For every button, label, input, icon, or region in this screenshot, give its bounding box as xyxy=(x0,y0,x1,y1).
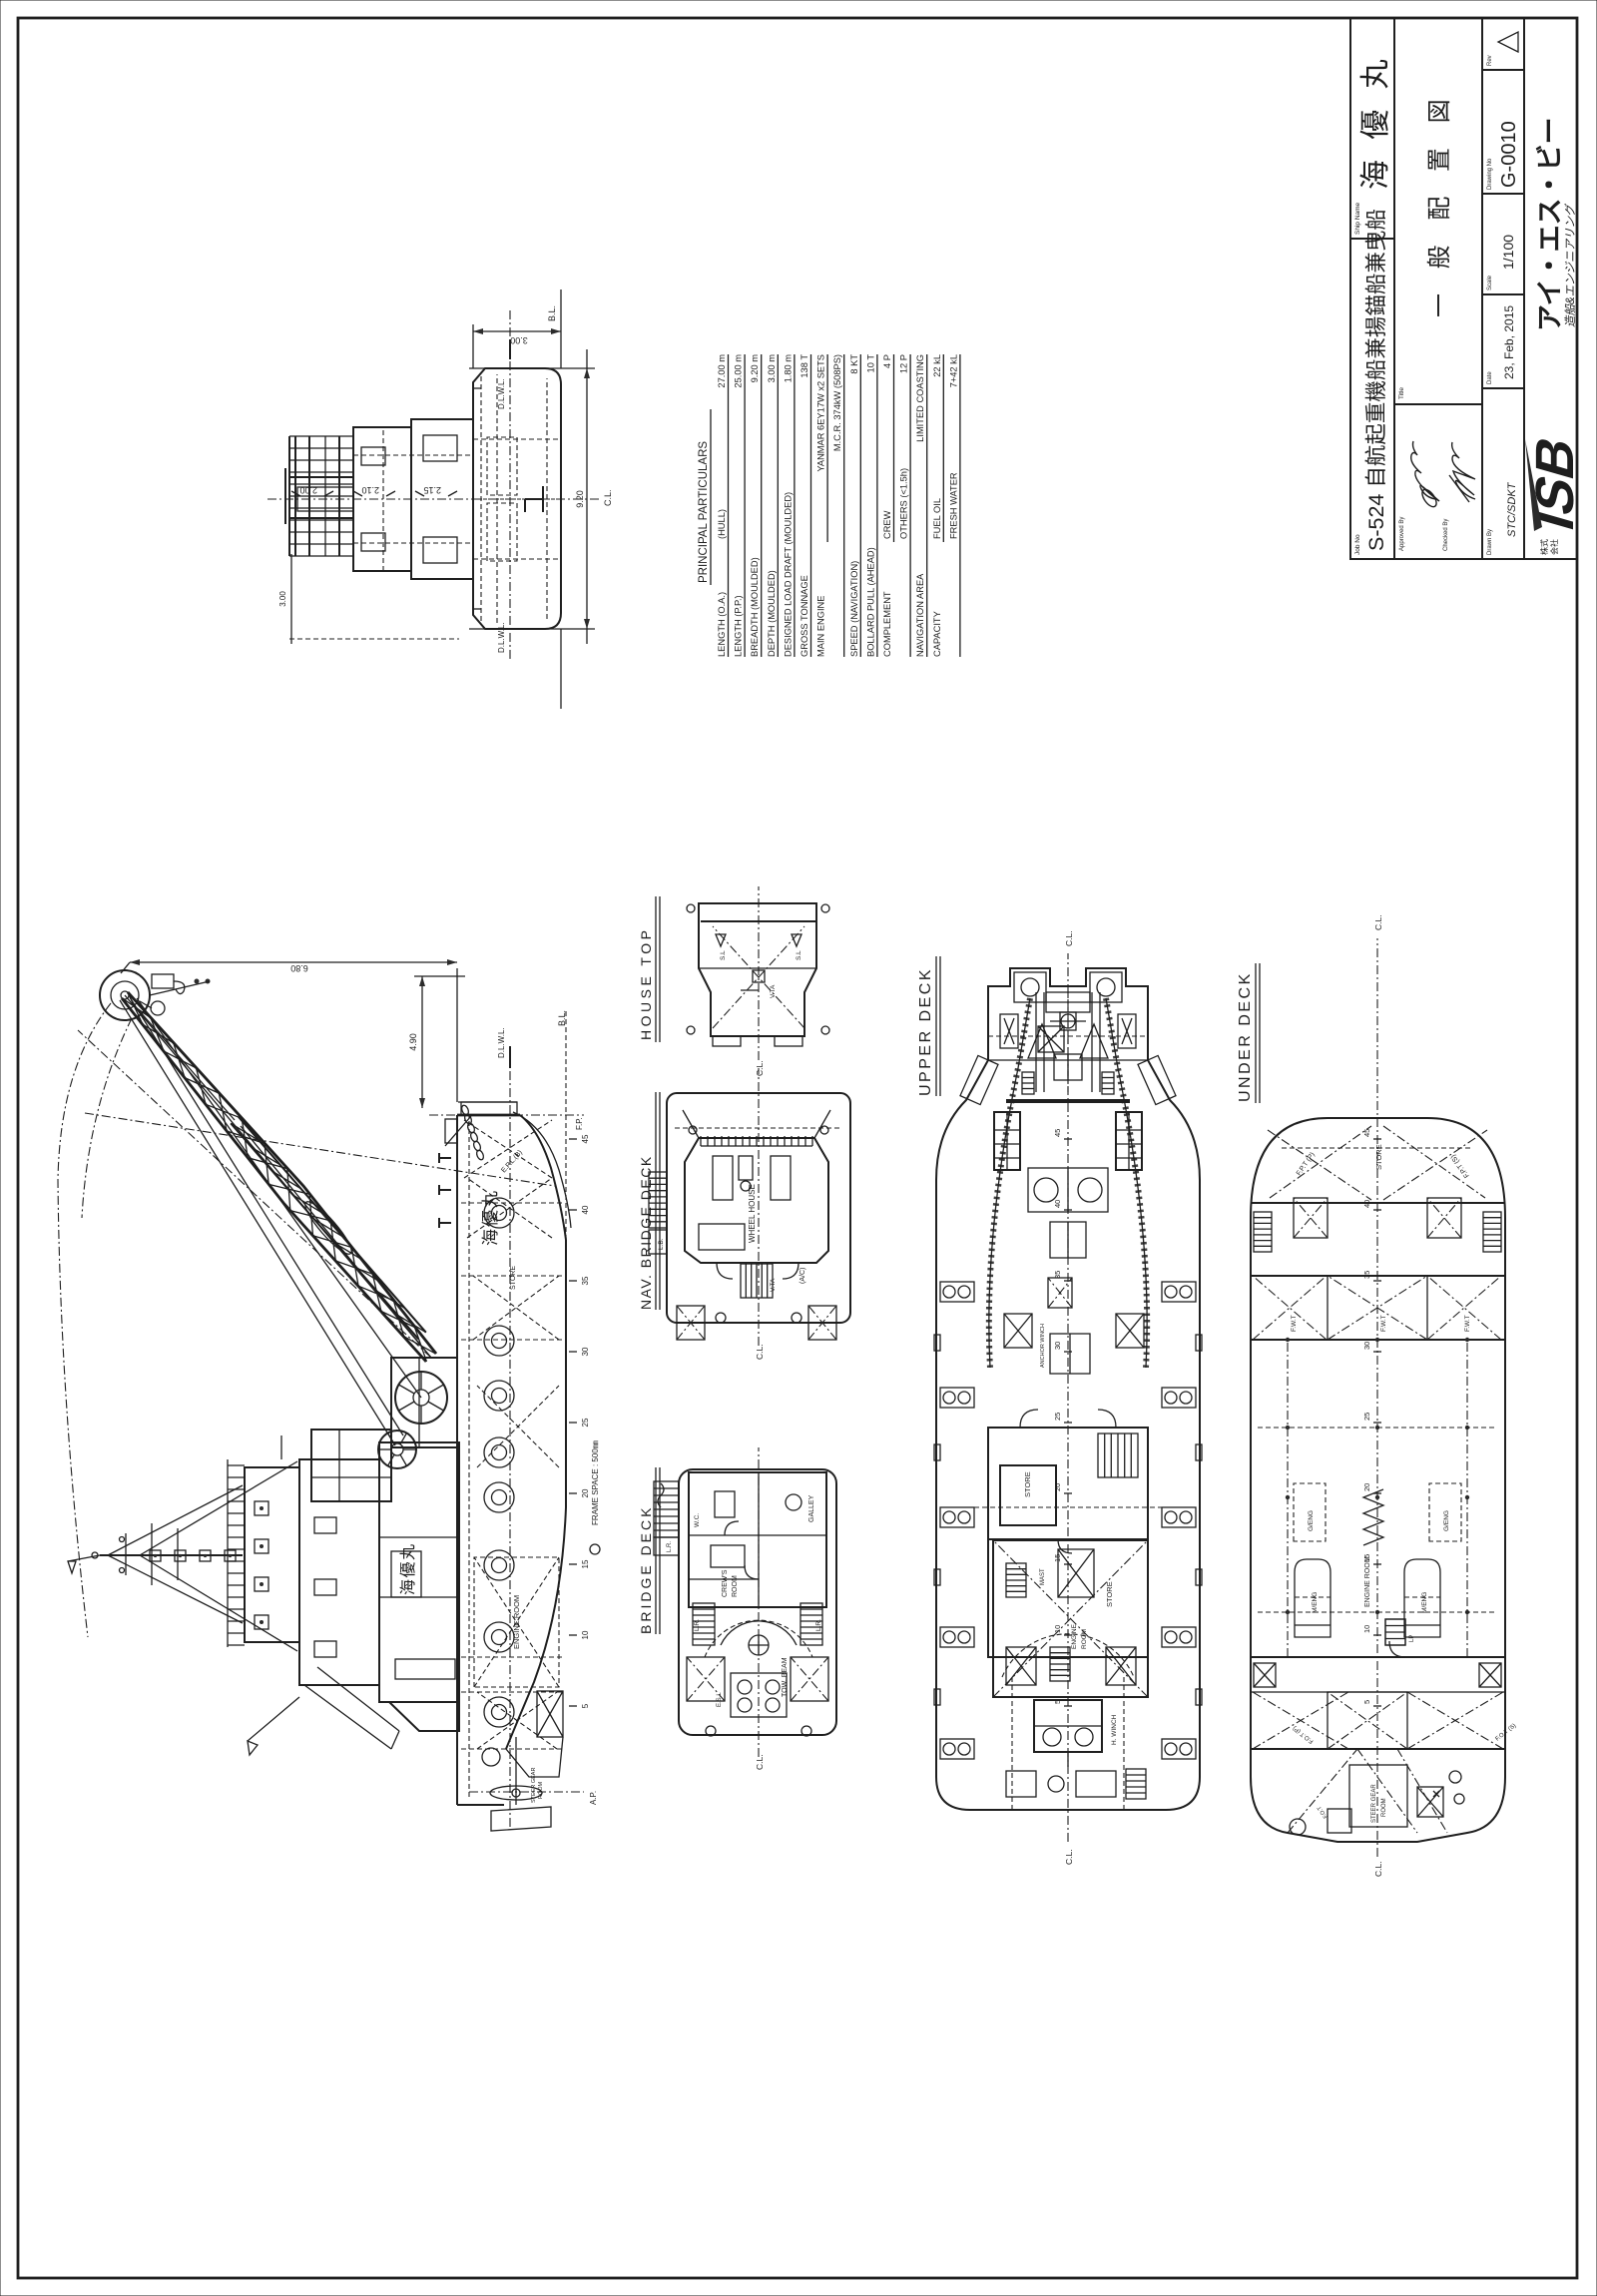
svg-text:L.R.: L.R. xyxy=(694,1619,701,1631)
svg-text:2.15: 2.15 xyxy=(423,485,441,495)
svg-text:ROOM: ROOM xyxy=(1381,1798,1387,1817)
svg-text:10: 10 xyxy=(581,1630,590,1639)
svg-text:20: 20 xyxy=(581,1488,590,1497)
svg-text:海優丸: 海優丸 xyxy=(481,1189,500,1246)
svg-text:30: 30 xyxy=(581,1347,590,1356)
svg-text:GROSS TONNAGE: GROSS TONNAGE xyxy=(799,575,809,657)
svg-text:H. WINCH: H. WINCH xyxy=(1111,1714,1118,1745)
svg-text:138 T: 138 T xyxy=(799,354,809,378)
svg-text:Ship Name: Ship Name xyxy=(1354,202,1361,235)
svg-text:SPEED (NAVIGATION): SPEED (NAVIGATION) xyxy=(849,561,859,657)
svg-text:20: 20 xyxy=(1362,1483,1371,1491)
svg-text:W.C.: W.C. xyxy=(694,1513,701,1527)
svg-text:ENGINE ROOM: ENGINE ROOM xyxy=(512,1595,521,1649)
svg-text:S.L: S.L xyxy=(720,950,727,960)
svg-text:FRAME SPACE : 500㎜: FRAME SPACE : 500㎜ xyxy=(591,1440,600,1525)
svg-text:B.L.: B.L. xyxy=(547,305,557,321)
svg-text:30: 30 xyxy=(1362,1342,1371,1350)
svg-text:A.P.: A.P. xyxy=(589,1791,598,1805)
svg-text:LENGTH (P.P.): LENGTH (P.P.) xyxy=(734,595,744,657)
svg-text:海 優 丸: 海 優 丸 xyxy=(1359,53,1392,190)
svg-text:1.80 m: 1.80 m xyxy=(783,354,793,383)
svg-text:E.S.L: E.S.L xyxy=(717,1692,723,1707)
svg-text:ROOM: ROOM xyxy=(538,1781,544,1799)
svg-text:Rev: Rev xyxy=(1487,55,1493,66)
svg-text:G/ENG: G/ENG xyxy=(1308,1510,1315,1531)
svg-text:ROOM: ROOM xyxy=(1081,1629,1088,1649)
svg-text:10: 10 xyxy=(1362,1625,1371,1633)
svg-text:ANCHOR WINCH: ANCHOR WINCH xyxy=(1040,1324,1046,1368)
svg-text:45: 45 xyxy=(581,1134,590,1143)
svg-text:Scale: Scale xyxy=(1487,275,1493,290)
svg-text:F.P.: F.P. xyxy=(575,1117,584,1130)
svg-text:BRIDGE DECK: BRIDGE DECK xyxy=(638,1505,654,1634)
svg-text:一 般 配 置 図: 一 般 配 置 図 xyxy=(1426,90,1453,317)
svg-text:会社: 会社 xyxy=(1549,539,1559,555)
svg-text:COMPLEMENT: COMPLEMENT xyxy=(882,591,892,657)
svg-text:海優丸: 海優丸 xyxy=(399,1542,417,1595)
svg-text:M.C.R. 374kW (508PS): M.C.R. 374kW (508PS) xyxy=(832,354,842,451)
svg-text:22 kL: 22 kL xyxy=(932,354,942,377)
svg-text:UNDER DECK: UNDER DECK xyxy=(1237,971,1254,1102)
svg-text:WHEEL HOUSE: WHEEL HOUSE xyxy=(748,1184,757,1243)
svg-text:Checked By: Checked By xyxy=(1443,519,1449,551)
svg-text:F.P.T (P): F.P.T (P) xyxy=(1296,1151,1317,1177)
svg-text:L.R.: L.R. xyxy=(667,1541,673,1552)
svg-text:C.L.: C.L. xyxy=(1373,914,1383,930)
svg-text:FUEL OIL: FUEL OIL xyxy=(932,498,942,539)
svg-text:HOUSE TOP: HOUSE TOP xyxy=(638,927,654,1040)
svg-text:L.R.: L.R. xyxy=(815,1619,822,1631)
svg-text:L.B.: L.B. xyxy=(658,1238,665,1250)
svg-text:STEER GEAR: STEER GEAR xyxy=(1371,1784,1377,1823)
svg-text:OTHERS (<1.5h): OTHERS (<1.5h) xyxy=(899,468,909,539)
svg-text:GALLEY: GALLEY xyxy=(808,1494,815,1522)
svg-text:C.L.: C.L. xyxy=(755,1754,765,1770)
svg-text:C.L.: C.L. xyxy=(603,489,613,506)
svg-text:30: 30 xyxy=(1053,1342,1062,1350)
svg-text:ENGINE ROOM: ENGINE ROOM xyxy=(1364,1556,1371,1607)
svg-text:1/100: 1/100 xyxy=(1500,235,1516,270)
svg-text:Drawing No: Drawing No xyxy=(1487,158,1493,190)
svg-text:27.00 m: 27.00 m xyxy=(717,354,727,388)
svg-text:35: 35 xyxy=(1362,1271,1371,1279)
svg-text:45: 45 xyxy=(1362,1129,1371,1137)
svg-text:25: 25 xyxy=(581,1418,590,1427)
svg-text:7+42 kL: 7+42 kL xyxy=(948,354,958,387)
svg-text:4.90: 4.90 xyxy=(408,1033,418,1051)
svg-text:UPPER DECK: UPPER DECK xyxy=(917,967,934,1096)
svg-text:45: 45 xyxy=(1053,1129,1062,1137)
svg-text:3.00 m: 3.00 m xyxy=(767,354,777,383)
svg-text:STORE: STORE xyxy=(1374,1144,1383,1170)
svg-text:12 P: 12 P xyxy=(899,354,909,373)
svg-text:35: 35 xyxy=(581,1276,590,1285)
svg-text:S-524 自航起重機船兼揚錨船兼曳船: S-524 自航起重機船兼揚錨船兼曳船 xyxy=(1364,209,1388,551)
svg-text:(HULL): (HULL) xyxy=(717,509,727,539)
svg-text:6.80: 6.80 xyxy=(290,963,308,973)
svg-text:C.L.: C.L. xyxy=(755,1060,765,1076)
svg-text:LP: LP xyxy=(1409,1635,1415,1642)
svg-text:DEPTH (MOULDED): DEPTH (MOULDED) xyxy=(767,570,777,657)
svg-text:8 KT: 8 KT xyxy=(849,354,859,374)
svg-text:V.TA: V.TA xyxy=(770,984,777,998)
svg-text:MAST: MAST xyxy=(1040,1568,1046,1585)
svg-text:Job No: Job No xyxy=(1354,534,1361,555)
svg-text:V.TA: V.TA xyxy=(770,1278,777,1292)
svg-text:STORE: STORE xyxy=(1023,1471,1032,1497)
svg-text:23, Feb, 2015: 23, Feb, 2015 xyxy=(1502,305,1516,379)
svg-text:C.L.: C.L. xyxy=(1064,930,1074,946)
svg-text:D.L.W.L.: D.L.W.L. xyxy=(497,378,506,409)
svg-text:20: 20 xyxy=(1053,1483,1062,1491)
svg-text:9.20: 9.20 xyxy=(575,490,585,508)
svg-text:STORE: STORE xyxy=(1105,1581,1114,1607)
svg-text:M/ENG: M/ENG xyxy=(1312,1592,1319,1613)
svg-text:10 T: 10 T xyxy=(865,354,875,373)
svg-text:造船&エンジニアリング: 造船&エンジニアリング xyxy=(1564,203,1577,327)
svg-text:25: 25 xyxy=(1053,1413,1062,1421)
svg-text:40: 40 xyxy=(1053,1200,1062,1208)
svg-text:G/ENG: G/ENG xyxy=(1443,1510,1450,1531)
svg-text:S.L: S.L xyxy=(796,950,802,960)
svg-text:LIMITED COASTING: LIMITED COASTING xyxy=(915,354,925,442)
svg-text:F.W.T: F.W.T xyxy=(1291,1315,1298,1332)
svg-text:BOLLARD PULL (AHEAD): BOLLARD PULL (AHEAD) xyxy=(865,547,875,657)
svg-text:3.00: 3.00 xyxy=(510,335,528,345)
svg-text:STC/SDKT: STC/SDKT xyxy=(1506,481,1518,537)
svg-text:C.L.: C.L. xyxy=(1064,1849,1074,1865)
svg-text:MAIN ENGINE: MAIN ENGINE xyxy=(816,596,826,657)
svg-text:F.W.T: F.W.T xyxy=(1380,1315,1387,1332)
svg-text:CREW: CREW xyxy=(882,510,892,539)
svg-text:アイ・エス・ビー: アイ・エス・ビー xyxy=(1535,117,1565,331)
svg-text:F.W.T: F.W.T xyxy=(1464,1315,1471,1332)
svg-text:CREW'S: CREW'S xyxy=(722,1569,729,1597)
svg-text:C.L.: C.L. xyxy=(1373,1861,1383,1877)
svg-text:2.10: 2.10 xyxy=(361,485,379,495)
svg-text:2.00: 2.00 xyxy=(299,485,317,495)
svg-text:Drawn By: Drawn By xyxy=(1487,529,1493,555)
svg-text:C.L.: C.L. xyxy=(755,1344,765,1360)
svg-text:CAPACITY: CAPACITY xyxy=(932,611,942,657)
svg-text:FRESH WATER: FRESH WATER xyxy=(948,472,958,539)
svg-text:ENGINE: ENGINE xyxy=(1071,1623,1078,1649)
svg-text:E.P.L.(B): E.P.L.(B) xyxy=(500,1149,524,1174)
svg-text:(A/C): (A/C) xyxy=(799,1268,806,1284)
svg-text:5: 5 xyxy=(1362,1700,1371,1704)
svg-text:STEER GEAR: STEER GEAR xyxy=(531,1768,537,1803)
svg-text:STORE: STORE xyxy=(510,1266,517,1290)
svg-text:9.20 m: 9.20 m xyxy=(750,354,760,383)
svg-text:BREADTH (MOULDED): BREADTH (MOULDED) xyxy=(750,557,760,657)
svg-text:Title: Title xyxy=(1398,387,1405,399)
svg-text:15: 15 xyxy=(581,1559,590,1568)
svg-text:25: 25 xyxy=(1362,1413,1371,1421)
svg-text:NAVIGATION AREA: NAVIGATION AREA xyxy=(915,573,925,657)
svg-text:ROOM: ROOM xyxy=(732,1575,739,1597)
svg-text:YANMAR 6EY17W x2 SETS: YANMAR 6EY17W x2 SETS xyxy=(816,354,826,472)
svg-text:D.L.W.L.: D.L.W.L. xyxy=(497,1027,506,1058)
svg-text:G-0010: G-0010 xyxy=(1498,121,1520,188)
svg-text:40: 40 xyxy=(581,1205,590,1214)
svg-text:DESIGNED LOAD DRAFT (MOULDED): DESIGNED LOAD DRAFT (MOULDED) xyxy=(783,492,793,657)
svg-text:Date: Date xyxy=(1487,371,1493,384)
svg-text:TOW. BEAM: TOW. BEAM xyxy=(782,1657,789,1697)
svg-text:Approved By: Approved By xyxy=(1399,517,1405,551)
svg-text:4 P: 4 P xyxy=(882,354,892,368)
svg-text:5: 5 xyxy=(581,1703,590,1708)
svg-text:25.00 m: 25.00 m xyxy=(734,354,744,388)
svg-text:3.00: 3.00 xyxy=(278,591,287,607)
svg-text:株式: 株式 xyxy=(1539,539,1549,555)
svg-text:M/ENG: M/ENG xyxy=(1421,1592,1428,1613)
svg-text:LENGTH (O.A.): LENGTH (O.A.) xyxy=(717,592,727,657)
svg-text:D.L.W.L.: D.L.W.L. xyxy=(497,622,506,653)
svg-text:PRINCIPAL PARTICULARS: PRINCIPAL PARTICULARS xyxy=(698,441,710,583)
